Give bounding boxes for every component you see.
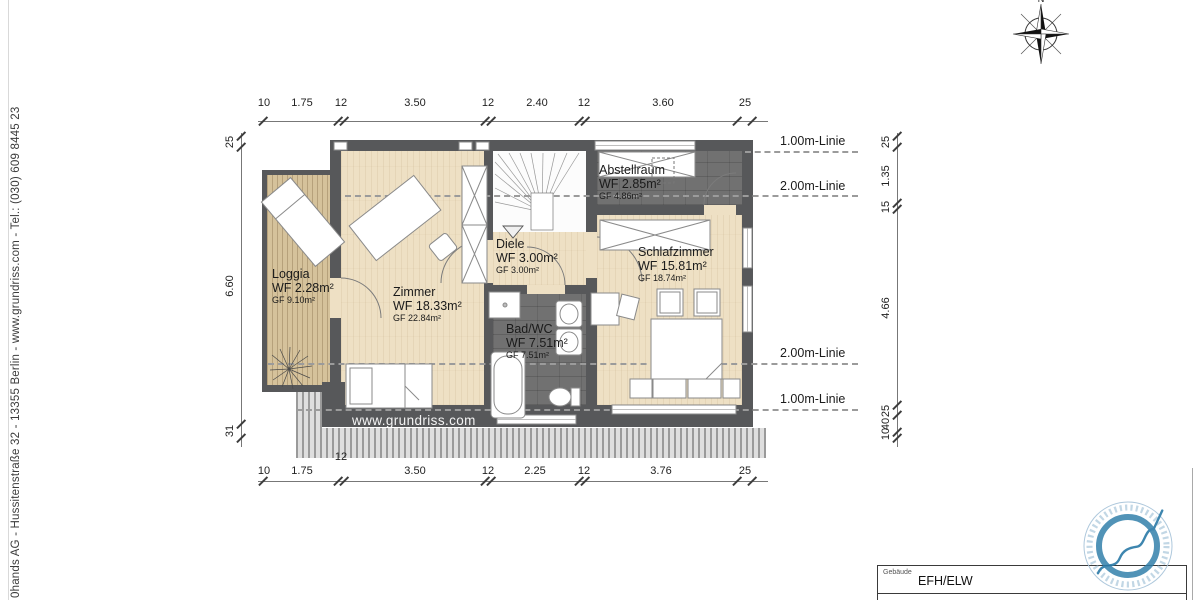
floor-schlafzimmer (597, 215, 742, 405)
wall-top (330, 140, 753, 151)
page-border-left (8, 0, 9, 600)
page-border-right (1192, 468, 1193, 600)
dim-top-8: 25 (739, 97, 751, 109)
wall-loggia-west (262, 170, 267, 392)
dim-top-4: 12 (482, 97, 494, 109)
dim-top-1: 1.75 (291, 97, 312, 109)
dim-right-4: 25 (880, 405, 892, 417)
compass-north-label: N (1038, 0, 1045, 4)
compass-rose: N (1013, 0, 1069, 64)
room-label-bad: Bad/WC WF 7.51m² GF 7.51m² (506, 323, 568, 361)
roof-hatch-bottom (296, 428, 766, 458)
dim-right-6: 10 (880, 428, 892, 440)
dim-top-0: 10 (258, 97, 270, 109)
dim-bottom-1: 1.75 (291, 465, 312, 477)
dim-bottom-2: 12 (335, 451, 347, 463)
room-label-loggia: Loggia WF 2.28m² GF 9.10m² (272, 268, 334, 306)
wall-bad-north-left (484, 285, 527, 294)
height-line-label-4: 1.00m-Linie (780, 392, 845, 406)
floorplan-page: 0hands AG - Hussitenstraße 32 - 13355 Be… (0, 0, 1200, 600)
dashline-2m-bottom (268, 363, 858, 365)
room-label-schlafzimmer: Schlafzimmer WF 15.81m² GF 18.74m² (638, 246, 714, 284)
dim-top-5: 2.40 (526, 97, 547, 109)
wall-bad-west (484, 283, 493, 405)
wall-schlafzimmer-west-lower (586, 278, 597, 405)
dim-right-3: 4.66 (880, 297, 892, 318)
door-opening-zimmer (484, 240, 493, 283)
wall-abstellraum-south-nib (736, 205, 742, 215)
watermark: www.grundriss.com (352, 413, 476, 428)
dim-bottom-4: 12 (482, 465, 494, 477)
dim-bottom-8: 25 (739, 465, 751, 477)
dim-left-2: 31 (224, 425, 236, 437)
room-label-abstellraum: Abstellraum WF 2.85m² GF 4.86m² (599, 164, 665, 202)
dim-bottom-0: 10 (258, 465, 270, 477)
wall-right (742, 151, 753, 405)
wall-schlafzimmer-west-upper (586, 215, 597, 232)
dim-right-0: 25 (880, 136, 892, 148)
door-opening-bad (527, 285, 565, 294)
height-line-label-3: 2.00m-Linie (780, 346, 845, 360)
dim-top-2: 12 (335, 97, 347, 109)
wall-abstellraum-south (597, 205, 704, 215)
dim-line-left (241, 133, 242, 447)
dim-top-7: 3.60 (652, 97, 673, 109)
wall-loggia-north (262, 170, 341, 175)
titleblock: Gebäude EFH/ELW (877, 565, 1187, 600)
floor-stairs (493, 151, 586, 232)
height-line-label-2: 2.00m-Linie (780, 179, 845, 193)
dim-bottom-6: 12 (578, 465, 590, 477)
door-opening-abstellraum (704, 205, 736, 215)
titleblock-field-label: Gebäude (883, 569, 912, 576)
room-label-zimmer: Zimmer WF 18.33m² GF 22.84m² (393, 286, 462, 324)
height-line-label-1: 1.00m-Linie (780, 134, 845, 148)
floor-zimmer (341, 151, 484, 405)
dim-line-right (897, 133, 898, 447)
dashline-1m-top (745, 151, 858, 153)
dim-left-0: 25 (224, 136, 236, 148)
wall-stairs-east (586, 151, 597, 215)
dim-top-3: 3.50 (404, 97, 425, 109)
room-label-diele: Diele WF 3.00m² GF 3.00m² (496, 238, 558, 276)
dim-right-2: 15 (880, 201, 892, 213)
dim-left-1: 6.60 (224, 275, 236, 296)
dim-bottom-5: 2.25 (524, 465, 545, 477)
dim-right-1: 1.35 (880, 165, 892, 186)
dim-top-6: 12 (578, 97, 590, 109)
wall-bad-north-right (565, 285, 586, 294)
wall-loggia-south (262, 385, 345, 392)
company-info-sidebar: 0hands AG - Hussitenstraße 32 - 13355 Be… (10, 53, 22, 598)
dim-bottom-7: 3.76 (650, 465, 671, 477)
dim-bottom-3: 3.50 (404, 465, 425, 477)
door-opening-schlafzimmer (586, 232, 597, 278)
titleblock-row-gebaeude: Gebäude EFH/ELW (878, 566, 1186, 594)
titleblock-field-value: EFH/ELW (918, 574, 973, 588)
dashline-1m-bottom (296, 409, 858, 411)
